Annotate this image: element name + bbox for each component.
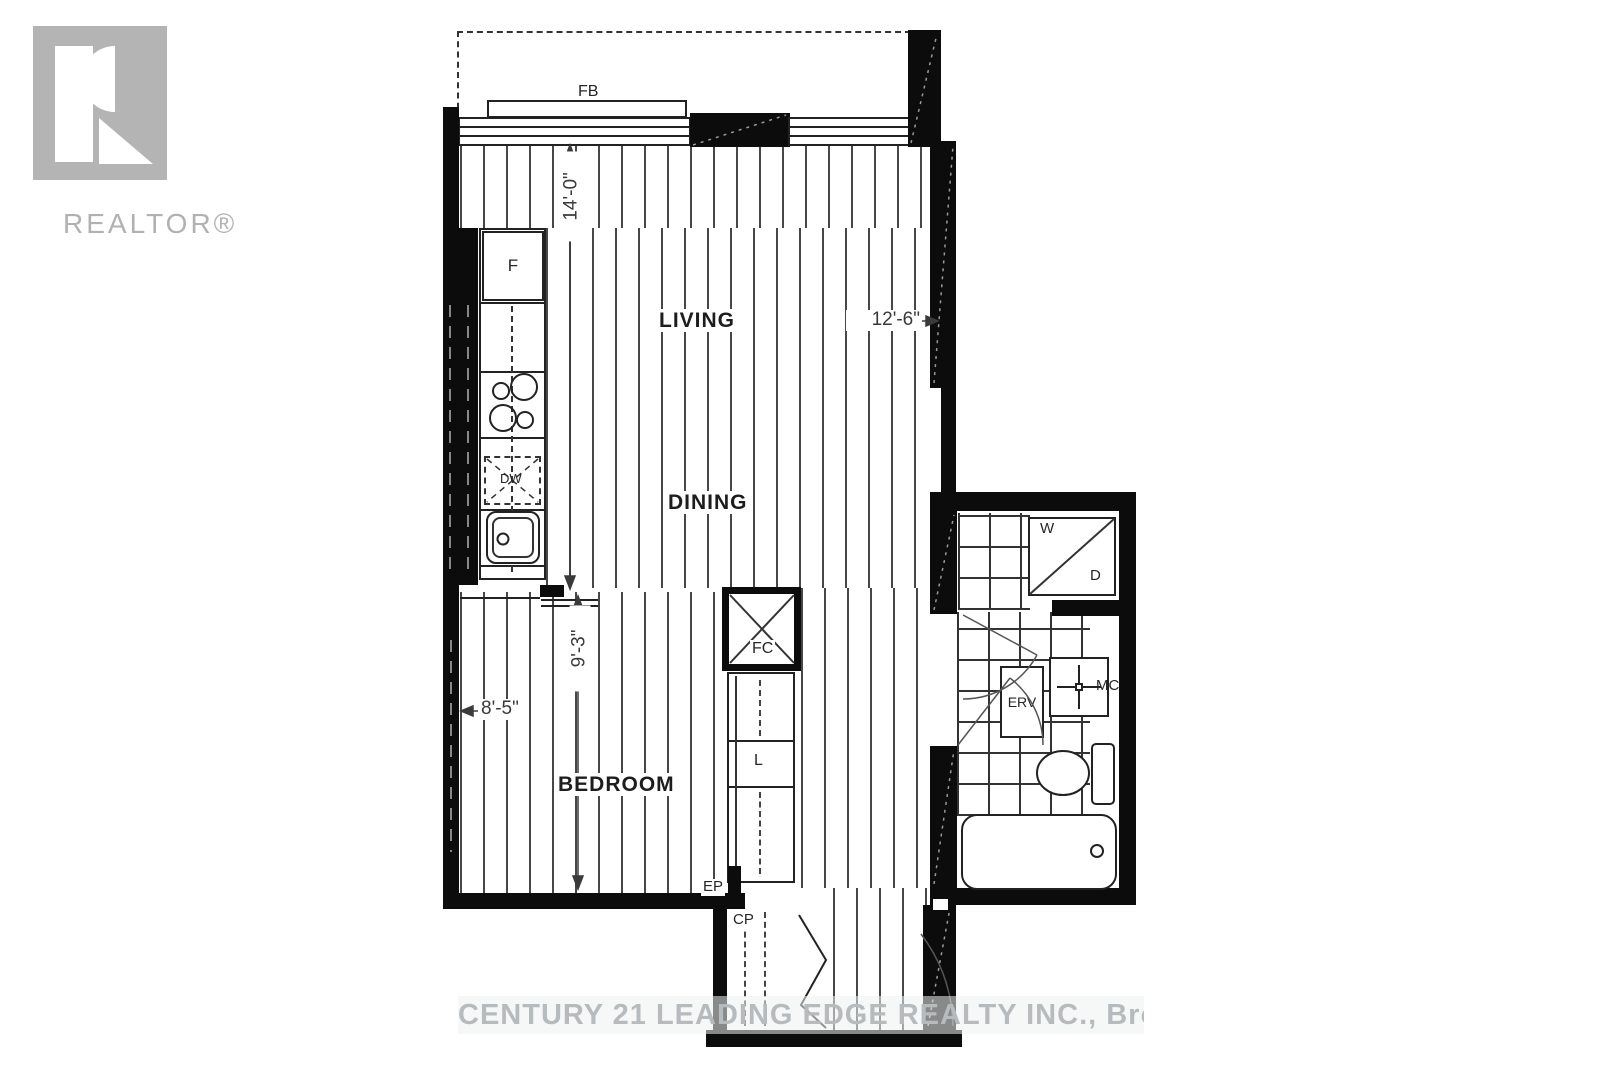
wall-right-upper [930,141,956,388]
kitchen-sink [486,511,540,564]
electrical-panel-label: EP [701,879,725,896]
floor-plan: REALTOR® F [0,0,1600,1067]
dryer-label: D [1088,568,1103,585]
entry-door-stop [933,899,948,910]
wall-left [443,107,459,909]
room-label-dining: DINING [666,491,750,514]
room-label-living: LIVING [657,309,737,332]
window-living-right [788,117,910,146]
wall-laundry-jog [1052,600,1119,616]
room-label-bedroom: BEDROOM [556,773,677,796]
tile-floor-laundry [958,513,1030,610]
wall-bath-left-lower [930,746,957,888]
realtor-logo: REALTOR® [33,26,213,246]
floor-hatch-living [546,228,930,588]
wall-bath-left-upper [930,511,957,614]
erv-label: ERV [1008,694,1037,710]
floor-hatch-living-top [460,146,930,228]
fridge-label: F [508,256,518,276]
dishwasher-label: DW [498,472,524,486]
wall-top-middle [690,113,790,147]
dimension-living-length: 14'-0" [562,151,583,241]
bathtub [961,814,1117,890]
window-living [458,117,691,146]
wall-bedroom-stub [540,585,564,597]
medicine-cabinet-label: MC [1094,678,1121,695]
wall-left-kitchen [459,228,478,585]
foyer-closet-label: FC [750,640,775,658]
toilet-tank [1091,743,1115,805]
dimension-living-width: 12'-6" [846,310,922,331]
linen-closet [727,672,795,883]
wall-bath-right [1119,503,1136,905]
wall-right-lower [941,388,956,492]
floor-hatch-hall [801,588,930,888]
balcony-door-panel [487,100,687,118]
fridge: F [482,231,544,301]
bedroom-opening-line [460,597,540,599]
washer-label: W [1038,521,1056,538]
linen-closet-label: L [752,752,765,770]
brokerage-watermark: CENTURY 21 LEADING EDGE REALTY INC., Bro… [458,996,1144,1034]
wall-bedroom-bottom [443,893,745,909]
dimension-bedroom-width: 8'-5" [479,699,521,720]
wall-bath-bottom [930,888,1136,905]
coat-closet-label: CP [731,912,756,929]
wall-corner-column [908,30,941,147]
realtor-logo-r-icon [33,26,167,180]
erv-unit: ERV [1000,666,1044,738]
electrical-panel-block [728,866,741,893]
dimension-bedroom-length: 9'-3" [570,605,591,691]
realtor-wordmark: REALTOR® [63,208,237,240]
balcony-door-label: FB [576,83,600,101]
wall-bath-top [930,492,1136,511]
foyer-closet [722,587,801,671]
